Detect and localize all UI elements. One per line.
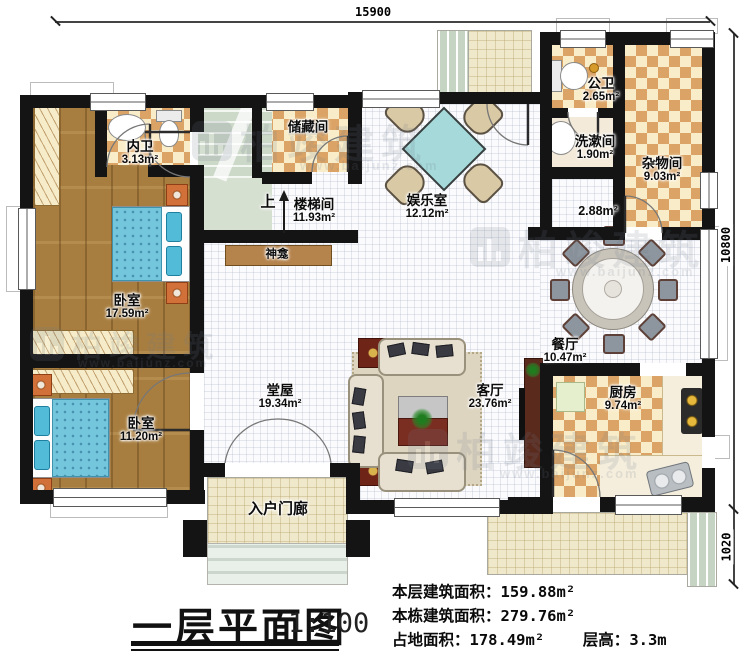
bed-pillow bbox=[34, 440, 50, 470]
title-underline bbox=[131, 641, 339, 646]
dimension-label-right: 10800 bbox=[719, 224, 733, 266]
wall bbox=[686, 363, 715, 376]
wall bbox=[498, 500, 553, 514]
bed-pillow bbox=[166, 246, 182, 276]
window bbox=[362, 90, 440, 108]
nightstand bbox=[166, 184, 188, 206]
area-label-corridor: 2.88m² bbox=[578, 204, 618, 218]
wall bbox=[528, 227, 625, 240]
wall bbox=[540, 167, 625, 179]
rear-terrace-steps bbox=[687, 512, 717, 587]
wall bbox=[193, 463, 225, 477]
window bbox=[53, 488, 167, 507]
sofa-pillow bbox=[352, 435, 366, 453]
chair bbox=[603, 334, 625, 354]
dimension-label-right-lower: 1020 bbox=[719, 530, 733, 565]
window bbox=[700, 172, 718, 209]
window bbox=[394, 498, 500, 517]
wall bbox=[598, 108, 613, 118]
stove bbox=[681, 388, 703, 434]
window bbox=[18, 208, 36, 290]
room-label-zawujian: 杂物间 9.03m² bbox=[642, 156, 683, 184]
sundry-room-floor bbox=[625, 45, 702, 227]
plant bbox=[411, 408, 433, 430]
wall bbox=[540, 45, 552, 177]
shrine-label: 神龛 bbox=[266, 249, 289, 262]
sofa-pillow bbox=[411, 342, 430, 356]
window bbox=[90, 93, 146, 111]
wall bbox=[348, 95, 362, 184]
door-knob bbox=[589, 63, 599, 73]
wall bbox=[540, 363, 553, 512]
wall bbox=[702, 32, 715, 172]
window bbox=[615, 495, 682, 515]
sofa bbox=[378, 452, 466, 492]
rear-terrace-floor bbox=[487, 512, 689, 575]
room-label-chufang: 厨房 9.74m² bbox=[605, 385, 641, 413]
title-underline-thin bbox=[131, 649, 339, 651]
nightstand bbox=[30, 374, 52, 396]
wall bbox=[198, 230, 358, 243]
wall bbox=[20, 95, 33, 504]
wardrobe bbox=[32, 330, 134, 355]
wall bbox=[262, 172, 312, 184]
floor-plan-canvas: 内卫 3.13m² 储藏间 楼梯间 11.93m² 上 神龛 娱乐室 12.12… bbox=[0, 0, 750, 659]
lazy-susan bbox=[604, 280, 622, 298]
wall bbox=[20, 354, 190, 368]
wall bbox=[95, 165, 107, 177]
room-label-woshi-a: 卧室 17.59m² bbox=[106, 293, 149, 321]
sofa-pillow bbox=[352, 411, 366, 430]
wall bbox=[552, 108, 568, 118]
porch-column bbox=[346, 520, 370, 557]
side-door-leaf bbox=[714, 435, 730, 459]
side-door-gap bbox=[702, 437, 715, 468]
dimension-line-right bbox=[733, 33, 735, 510]
sofa-pillow bbox=[435, 344, 453, 358]
bed-pillow bbox=[166, 212, 182, 242]
toilet-bowl bbox=[159, 120, 179, 147]
nightstand bbox=[166, 282, 188, 304]
room-label-loutijian: 楼梯间 11.93m² bbox=[293, 197, 335, 225]
wall bbox=[330, 463, 360, 477]
wall bbox=[190, 175, 204, 373]
tv bbox=[519, 388, 525, 440]
wall bbox=[95, 108, 107, 165]
room-label-canting: 餐厅 10.47m² bbox=[544, 337, 587, 365]
room-label-yuleshi: 娱乐室 12.12m² bbox=[406, 193, 449, 221]
wall bbox=[346, 500, 396, 514]
sink bbox=[108, 114, 146, 141]
stats-line-2: 本栋建筑面积：279.76m² bbox=[392, 604, 575, 626]
drawing-scale: 1:100 bbox=[288, 608, 369, 639]
wall bbox=[702, 207, 715, 229]
chair bbox=[658, 279, 678, 301]
wall bbox=[680, 497, 715, 512]
porch-steps bbox=[207, 543, 348, 585]
room-label-gongwei: 公卫 2.65m² bbox=[583, 76, 619, 104]
room-label-woshi-b: 卧室 11.20m² bbox=[120, 416, 162, 444]
wall bbox=[252, 95, 262, 178]
bed-blanket bbox=[112, 207, 162, 281]
balcony-floor bbox=[467, 30, 532, 94]
wardrobe bbox=[34, 106, 60, 206]
sofa-pillow bbox=[395, 459, 414, 474]
dimension-line-top bbox=[55, 21, 710, 23]
window bbox=[700, 229, 718, 359]
storage-floor bbox=[262, 108, 348, 172]
bed-blanket bbox=[52, 399, 109, 477]
stairs-up-label: 上 bbox=[260, 195, 275, 212]
room-label-neiwei: 内卫 3.13m² bbox=[122, 139, 158, 167]
room-label-tangwu: 堂屋 19.34m² bbox=[259, 383, 302, 411]
stats-line-1: 本层建筑面积：159.88m² bbox=[392, 580, 575, 602]
plant bbox=[525, 362, 541, 378]
cutting-board bbox=[556, 382, 585, 412]
bed-pillow bbox=[34, 406, 50, 436]
porch-column bbox=[183, 520, 207, 557]
room-label-xishujian: 洗漱间 1.90m² bbox=[575, 134, 616, 162]
wall bbox=[190, 95, 204, 132]
room-label-keting: 客厅 23.76m² bbox=[469, 383, 512, 411]
window bbox=[670, 30, 714, 48]
room-label-chucangjian: 储藏间 bbox=[288, 119, 329, 134]
chair bbox=[550, 279, 570, 301]
window bbox=[266, 93, 314, 111]
stats-line-3: 占地面积：178.49m² 层高：3.3m bbox=[392, 628, 667, 650]
dimension-label-top: 15900 bbox=[352, 5, 394, 19]
room-label-ruhu: 入户门廊 bbox=[248, 502, 308, 519]
window bbox=[560, 30, 606, 48]
balcony-steps bbox=[437, 30, 469, 94]
